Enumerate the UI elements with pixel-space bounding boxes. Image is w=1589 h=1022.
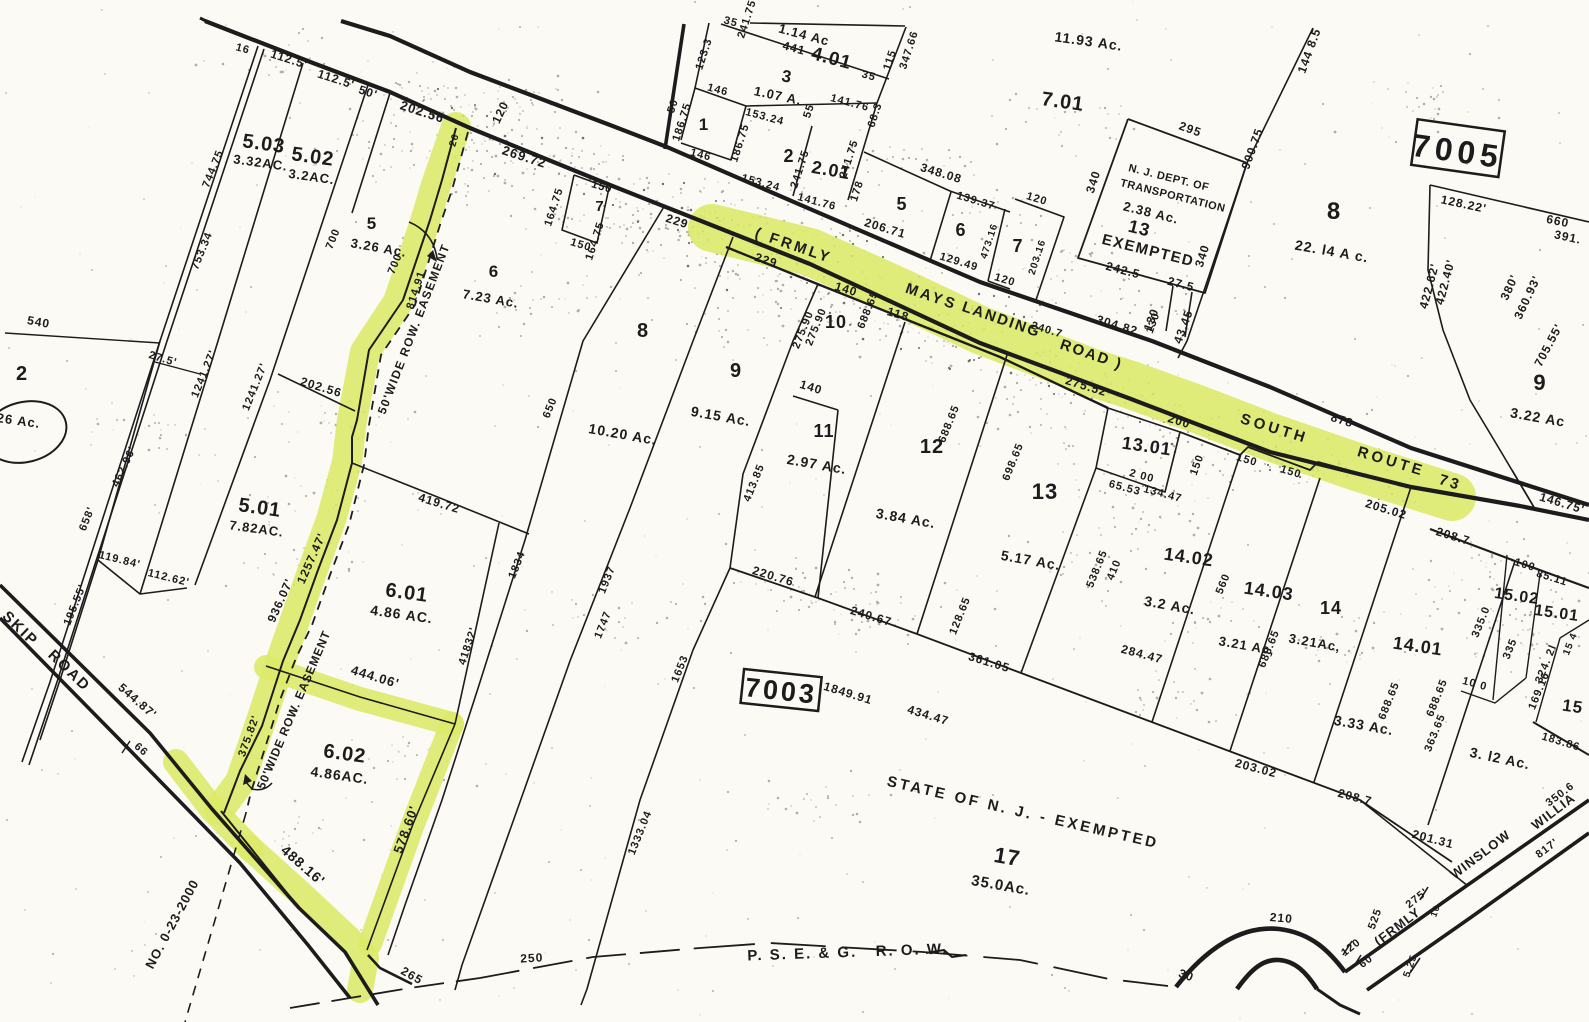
svg-text:2: 2 <box>16 363 28 385</box>
svg-text:6: 6 <box>489 262 499 281</box>
svg-text:1: 1 <box>699 115 709 134</box>
svg-text:9: 9 <box>1533 370 1546 395</box>
svg-text:10: 10 <box>825 312 847 332</box>
svg-text:8: 8 <box>637 320 649 342</box>
svg-text:2: 2 <box>783 146 794 166</box>
svg-text:17: 17 <box>992 842 1022 871</box>
svg-text:210: 210 <box>1269 910 1293 926</box>
svg-text:7: 7 <box>595 198 604 215</box>
svg-text:5: 5 <box>896 194 907 214</box>
svg-text:250: 250 <box>520 950 544 965</box>
svg-text:6: 6 <box>955 220 966 240</box>
svg-text:14: 14 <box>1320 598 1342 618</box>
svg-text:15: 15 <box>1561 696 1584 718</box>
svg-text:13: 13 <box>1032 479 1058 504</box>
svg-text:8: 8 <box>1327 198 1341 225</box>
svg-text:11: 11 <box>813 421 834 441</box>
svg-text:5: 5 <box>367 214 377 233</box>
svg-text:9: 9 <box>730 360 742 382</box>
svg-text:7: 7 <box>1012 236 1023 256</box>
